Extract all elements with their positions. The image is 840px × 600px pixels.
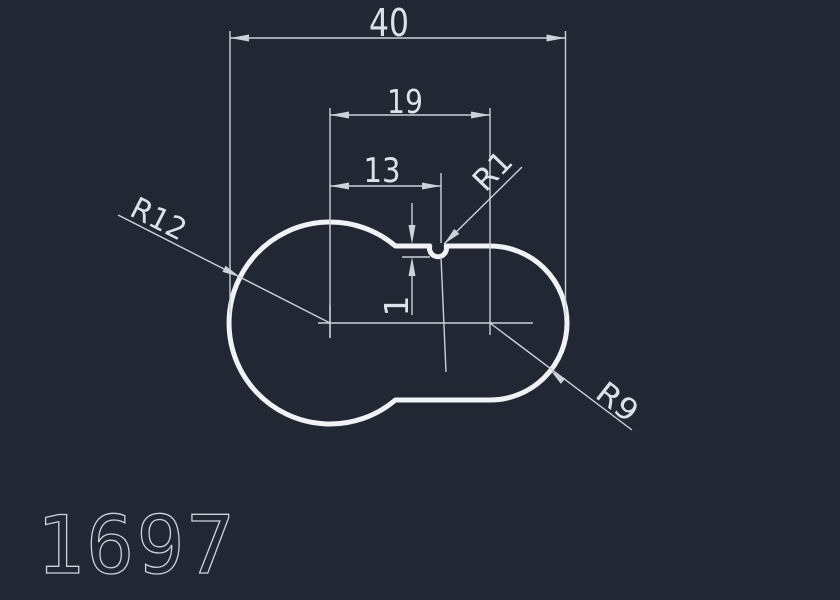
cad-viewport: 40 19 13 1 R1 R12: [0, 0, 840, 600]
part-number: 1697: [36, 499, 237, 592]
dim-notch-depth-label: 1: [377, 296, 416, 317]
drawing-svg: 40 19 13 1 R1 R12: [0, 0, 840, 600]
dim-centers-distance-label: 19: [387, 82, 423, 121]
part-number-label: 1697: [36, 499, 237, 592]
dim-notch-offset-label: 13: [364, 151, 401, 191]
dim-overall-width-label: 40: [369, 1, 409, 45]
